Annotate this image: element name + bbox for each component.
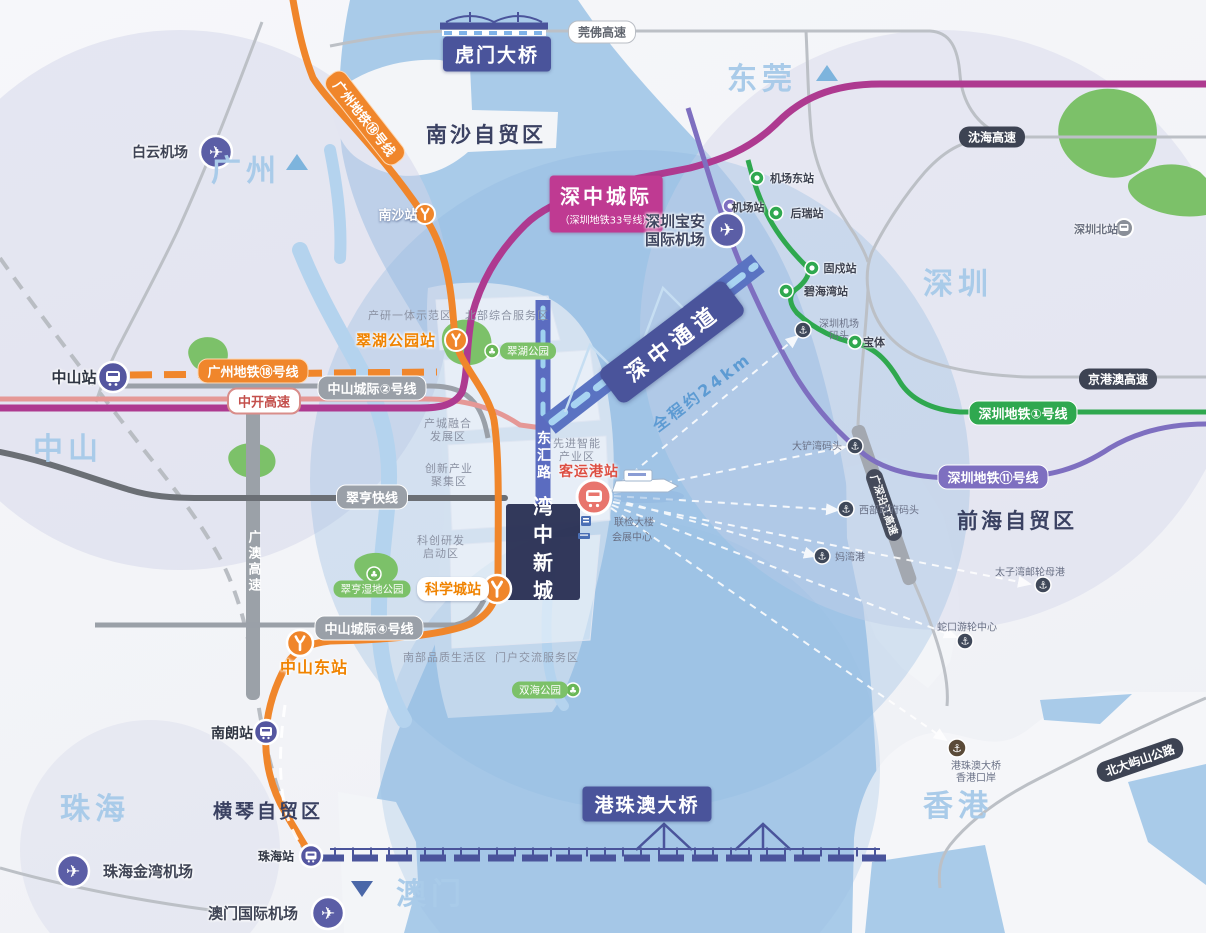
donghui-road-label: 东汇路 [533,431,553,482]
zs-intercity2-label: 中山城际②号线 [317,376,426,401]
port-west-gov: 西部政府码头 [859,502,919,517]
jinggangao-expressway-label: 京港澳高速 [1079,369,1157,390]
station-zhuhai: 珠海站 [258,848,294,865]
park-shuanghai: 双海公园 [512,682,568,699]
szzs-intercity-subtitle: （深圳地铁33号线） [560,212,653,227]
zhongkai-expressway-label: 中开高速 [227,388,301,415]
station-zhongshan-east: 中山东站 [280,654,348,678]
szzs-intercity-title: 深中城际 [560,181,653,210]
station-nansha: 南沙站 [378,205,417,224]
station-hourui: 后瑞站 [791,205,824,221]
city-hongkong: 香港 [923,781,993,825]
port-taiziwan: 太子湾邮轮母港 [995,564,1065,579]
park-cuiheng-wetland: 翠亨湿地公园 [334,581,411,598]
zone-hengqin-fta: 横琴自贸区 [213,797,323,824]
svg-text:♣: ♣ [488,347,496,357]
convention-center-icon [578,533,590,539]
district-rd-launch: 科创研发启动区 [417,535,465,561]
baoan-airport-icon: ✈ [710,213,744,247]
nansha-metro-icon [415,204,435,224]
triangle-marker-macau [351,881,373,897]
cuiheng-express-label: 翠亨快线 [336,485,408,510]
triangle-marker-guangzhou [286,154,308,170]
jinwan-airport-icon: ✈ [57,855,89,887]
wanzhong-newtown-label: 湾中新城 [528,496,557,608]
station-cuihu-park: 翠湖公园站 [356,330,436,351]
city-zhongshan: 中山 [33,424,103,468]
station-science-city: 科学城站 [417,577,489,601]
joint-inspection-icon [581,516,591,526]
station-bihaiwan: 碧海湾站 [804,283,848,299]
zhongshan-east-metro-icon [287,630,313,656]
svg-text:✈: ✈ [66,862,80,882]
port-mawan: 妈湾港 [835,549,865,564]
airport-macau-label: 澳门国际机场 [208,903,298,924]
svg-text:⚓: ⚓ [842,505,851,516]
airport-baoan-label: 深圳宝安国际机场 [643,213,707,248]
triangle-marker-dongguan [816,65,838,81]
landmark-joint-inspection: 联检大楼 [614,514,654,529]
zs-intercity4-label: 中山城际④号线 [314,616,423,641]
svg-text:♣: ♣ [370,570,378,580]
zhuhai-station-icon [300,845,322,867]
city-shenzhen: 深圳 [923,259,993,303]
bay-area-transit-map: ✈ ✈ ✈ ✈ ⚓ ⚓ ⚓ ⚓ ⚓ ⚓ ⚓ ♣ ♣ ♣ 广州 东莞 深圳 中山 … [0,0,1206,933]
svg-text:✈: ✈ [719,220,734,241]
district-south-life: 南部品质生活区 [403,649,487,665]
gz-metro18-label: 广州地铁⑱号线 [197,359,308,384]
city-guangzhou: 广州 [211,146,281,190]
zone-qianhai-fta: 前海自贸区 [957,505,1077,535]
svg-text:⚓: ⚓ [1039,581,1048,592]
station-shenzhen-north: 深圳北站 [1074,221,1118,237]
sz-metro11-label: 深圳地铁⑪号线 [937,465,1048,490]
passenger-port-station-icon [577,480,611,514]
port-dachanwan: 大铲湾码头 [792,438,842,453]
svg-text:♣: ♣ [569,686,577,696]
district-gateway: 门户交流服务区 [495,649,579,665]
station-baoti: 宝体 [863,334,885,350]
city-zhuhai: 珠海 [60,784,130,828]
landmark-convention-center: 会展中心 [612,529,652,544]
shenhai-expressway-label: 沈海高速 [959,127,1025,148]
svg-text:⚓: ⚓ [851,442,860,453]
macau-airport-icon: ✈ [312,897,344,929]
svg-text:✈: ✈ [321,904,335,924]
port-sz-airport-ferry: 深圳机场码头 [816,319,862,343]
district-city-industry: 产城融合发展区 [424,418,472,444]
station-nanlang: 南朗站 [211,723,253,743]
hzmb-label: 港珠澳大桥 [582,787,711,822]
svg-text:⚓: ⚓ [961,637,970,648]
city-dongguan: 东莞 [727,54,797,98]
zone-nansha-fta: 南沙自贸区 [426,119,546,149]
humen-bridge-label: 虎门大桥 [443,37,551,72]
port-hzmb-hk: 港珠澳大桥香港口岸 [948,761,1004,785]
station-zhongshan: 中山站 [51,367,96,388]
zhongshan-station-icon [98,362,128,392]
airport-jinwan-label: 珠海金湾机场 [103,861,193,882]
district-industry-research: 产研一体示范区 [368,307,452,323]
cuihu-park-metro-icon [445,329,467,351]
district-innovation: 创新产业聚集区 [425,463,473,489]
district-smart-industry: 先进智能产业区 [553,438,601,464]
station-airport-east: 机场东站 [770,170,814,186]
port-shekou: 蛇口游轮中心 [937,619,997,634]
guanfo-expressway-label: 莞佛高速 [568,21,636,44]
zhuhai-white-dashed [280,705,306,852]
svg-text:⚓: ⚓ [799,326,808,337]
svg-text:⚓: ⚓ [818,552,827,563]
park-cuihu: 翠湖公园 [500,343,556,360]
station-airport: 机场站 [732,199,765,215]
city-macau: 澳门 [396,869,466,913]
district-north-service: 北部综合服务区 [465,307,549,323]
station-passenger-port: 客运港站 [559,461,619,481]
airport-baiyun-label: 白云机场 [132,142,188,162]
station-gushu: 固戍站 [824,260,857,276]
sz-metro1-label: 深圳地铁①号线 [968,401,1077,426]
guangao-expressway-label: 广澳高速 [244,530,263,594]
nanlang-station-icon [254,720,278,744]
svg-text:⚓: ⚓ [952,742,962,755]
